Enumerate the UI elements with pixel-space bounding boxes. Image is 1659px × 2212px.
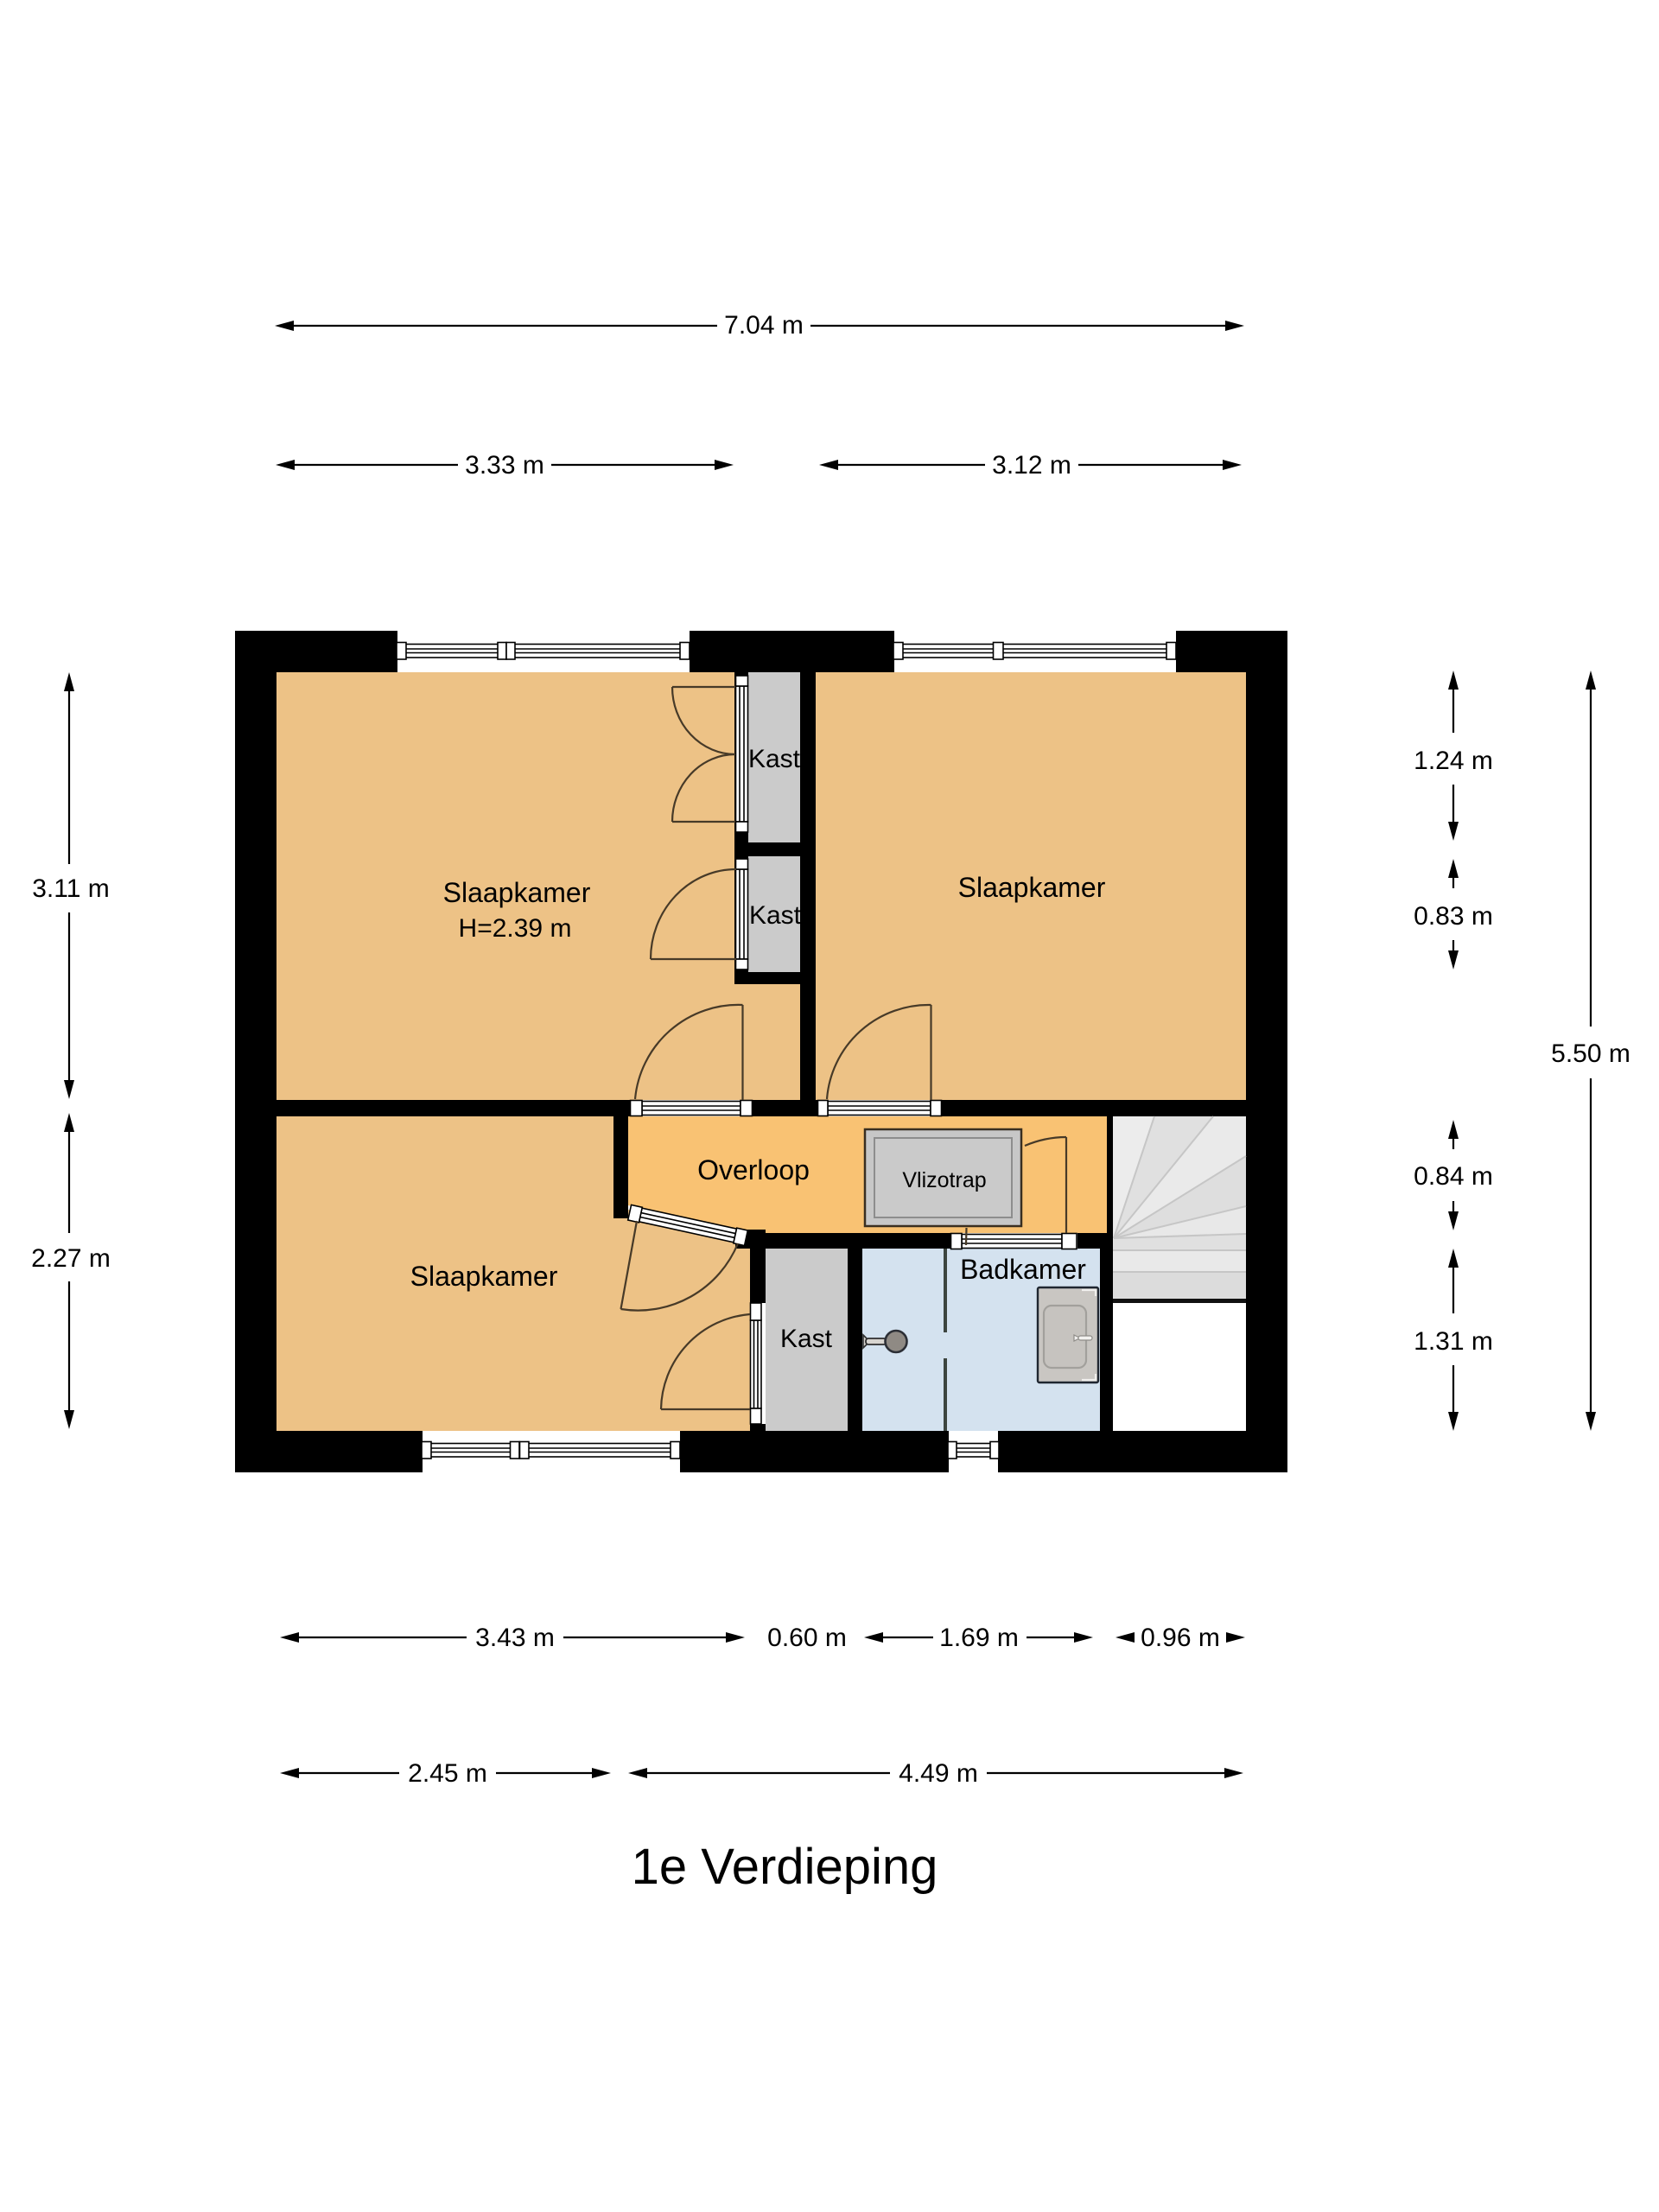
svg-text:0.84 m: 0.84 m [1414, 1162, 1493, 1191]
svg-text:0.60 m: 0.60 m [767, 1624, 847, 1652]
svg-text:3.12 m: 3.12 m [992, 451, 1071, 480]
svg-text:Vlizotrap: Vlizotrap [902, 1168, 986, 1192]
svg-text:1e Verdieping: 1e Verdieping [632, 1839, 938, 1895]
svg-text:4.49 m: 4.49 m [899, 1759, 978, 1788]
svg-text:0.83 m: 0.83 m [1414, 902, 1493, 931]
svg-text:3.43 m: 3.43 m [475, 1624, 555, 1652]
svg-text:2.45 m: 2.45 m [408, 1759, 487, 1788]
svg-text:3.11 m: 3.11 m [32, 874, 110, 903]
svg-text:Slaapkamer: Slaapkamer [410, 1261, 558, 1292]
svg-text:Slaapkamer: Slaapkamer [958, 872, 1106, 903]
svg-text:Kast: Kast [748, 745, 801, 773]
svg-text:Kast: Kast [780, 1325, 833, 1353]
svg-text:7.04 m: 7.04 m [724, 311, 804, 340]
svg-text:3.33 m: 3.33 m [465, 451, 544, 480]
svg-text:1.69 m: 1.69 m [939, 1624, 1019, 1652]
svg-text:5.50 m: 5.50 m [1551, 1039, 1630, 1068]
svg-text:H=2.39 m: H=2.39 m [459, 914, 572, 943]
svg-text:2.27 m: 2.27 m [31, 1244, 111, 1273]
svg-text:Kast: Kast [749, 901, 802, 930]
svg-text:Slaapkamer: Slaapkamer [443, 877, 591, 908]
svg-text:1.24 m: 1.24 m [1414, 747, 1493, 775]
svg-text:Overloop: Overloop [697, 1154, 810, 1185]
svg-text:Badkamer: Badkamer [960, 1254, 1086, 1285]
svg-text:1.31 m: 1.31 m [1414, 1327, 1493, 1356]
svg-text:0.96 m: 0.96 m [1141, 1624, 1220, 1652]
